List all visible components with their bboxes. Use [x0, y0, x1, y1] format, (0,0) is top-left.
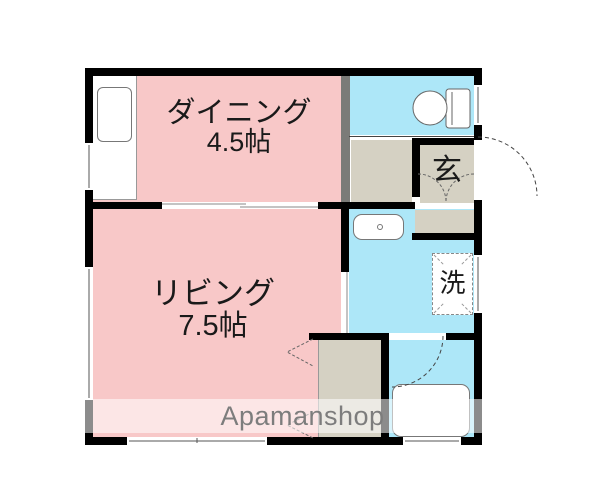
living-room-label: リビング 7.5帖 [93, 278, 333, 341]
front-door-swing-arc [478, 137, 537, 196]
toilet-bowl-icon [413, 89, 470, 128]
floor-plan: ダイニング 4.5帖 リビング 7.5帖 玄 洗 Apamanshop [0, 0, 600, 480]
washbasin-drain [378, 225, 383, 230]
dining-room-size: 4.5帖 [137, 128, 341, 156]
dining-room-name: ダイニング [137, 98, 341, 128]
sliding-door-symbol [162, 204, 318, 207]
dining-room-label: ダイニング 4.5帖 [137, 98, 341, 157]
laundry-label: 洗 [432, 270, 473, 297]
entrance-label: 玄 [420, 155, 474, 187]
watermark-text: Apamanshop [180, 400, 425, 432]
bathroom-door-swing-arc [392, 336, 443, 387]
living-room-name: リビング [93, 278, 333, 311]
living-room-size: 7.5帖 [93, 311, 333, 341]
